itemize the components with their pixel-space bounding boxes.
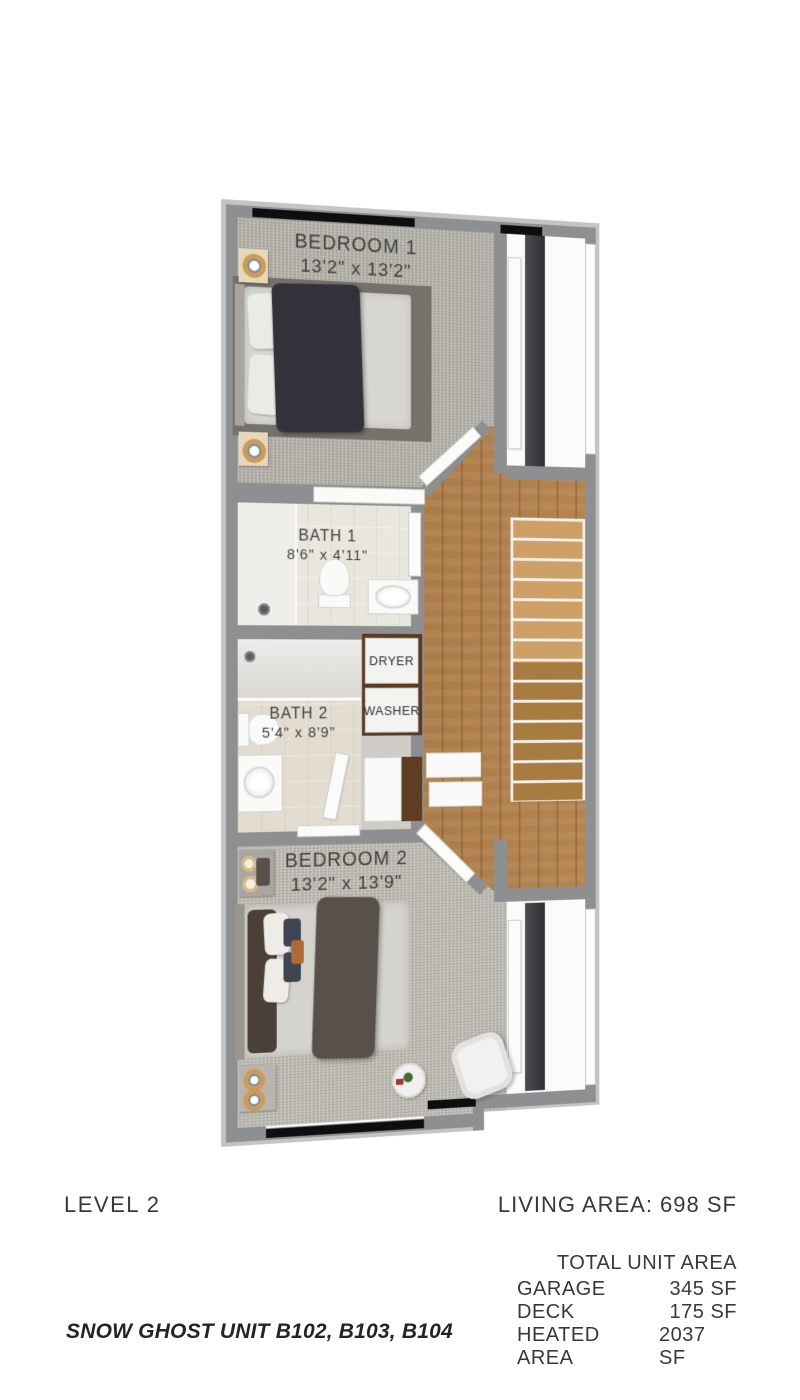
area-row-garage: GARAGE 345 SF xyxy=(517,1278,737,1301)
level-label: LEVEL 2 xyxy=(64,1192,161,1218)
area-row-deck-label: DECK xyxy=(517,1301,575,1324)
stair-treads-upper xyxy=(513,520,582,662)
bath1-wall-cabinet xyxy=(313,486,425,504)
washer-label: WASHER xyxy=(364,703,420,718)
bedroom1-closet-door xyxy=(509,258,521,449)
wall-closet-bottom xyxy=(507,886,585,902)
dryer: DRYER xyxy=(365,638,419,684)
bath1-sink xyxy=(375,585,411,609)
wall-closet-top xyxy=(507,465,585,481)
bedroom1-bed-headboard xyxy=(235,284,245,426)
bedroom2-closet-wardrobe xyxy=(525,902,545,1091)
hall-closet-door-2 xyxy=(429,781,483,807)
laundry-lower-shelf xyxy=(402,757,423,822)
area-table: TOTAL UNIT AREA GARAGE 345 SF DECK 175 S… xyxy=(517,1252,737,1370)
bedroom1-blanket xyxy=(271,283,364,432)
bath2-label: BATH 2 5'4" x 8'9" xyxy=(231,704,366,743)
bedroom2-blanket xyxy=(312,897,380,1059)
bath2-shower-glass xyxy=(238,698,361,701)
living-area-label: LIVING AREA: 698 SF xyxy=(498,1192,737,1218)
wall-bedroom1-closet xyxy=(494,233,507,474)
area-row-garage-value: 345 SF xyxy=(670,1278,737,1301)
stair-treads-lower xyxy=(513,662,582,801)
bath1-label: BATH 1 8'6" x 4'11" xyxy=(260,526,394,567)
bedroom2-accent-pillow xyxy=(291,940,304,964)
bath1-shower-glass xyxy=(295,501,297,630)
window-right-bottom xyxy=(585,908,596,1085)
dryer-label: DRYER xyxy=(369,653,414,668)
bath1-name: BATH 1 xyxy=(260,526,394,548)
bath1-shower-head xyxy=(258,603,270,615)
bath1-door xyxy=(409,513,420,576)
area-table-title: TOTAL UNIT AREA xyxy=(517,1252,737,1275)
area-row-heated-value: 2037 SF xyxy=(659,1324,737,1370)
staircase xyxy=(511,517,586,801)
area-row-deck: DECK 175 SF xyxy=(517,1301,737,1324)
area-row-deck-value: 175 SF xyxy=(670,1301,737,1324)
washer: WASHER xyxy=(365,688,419,733)
bedroom1-lamp-bottom xyxy=(243,439,266,464)
area-row-garage-label: GARAGE xyxy=(517,1278,606,1301)
hall-closet-door-1 xyxy=(426,752,481,778)
window-right-top xyxy=(585,243,596,454)
area-row-heated-label: HEATED AREA xyxy=(517,1324,659,1370)
bath2-dims: 5'4" x 8'9" xyxy=(231,724,366,744)
bath1-dims: 8'6" x 4'11" xyxy=(260,546,394,567)
bedroom1-closet-wardrobe xyxy=(525,234,545,467)
bedroom1-label: BEDROOM 1 13'2" x 13'2" xyxy=(260,227,450,286)
bedroom2-label: BEDROOM 2 13'2" x 13'9" xyxy=(250,846,440,899)
bath2-threshold xyxy=(297,824,360,837)
laundry-lower-cabinet xyxy=(364,757,402,822)
bedroom2-table-item xyxy=(396,1079,404,1085)
wall-bedroom2-closet xyxy=(494,840,507,902)
bedroom2-closet-door xyxy=(509,921,521,1073)
bedroom2-bed-headboard xyxy=(235,904,245,1060)
unit-title: SNOW GHOST UNIT B102, B103, B104 xyxy=(66,1320,453,1344)
area-row-heated: HEATED AREA 2037 SF xyxy=(517,1324,737,1370)
floor-plan: DRYER WASHER BEDROOM 1 13'2" x 13'2" BAT… xyxy=(221,199,599,1147)
bath2-shower xyxy=(238,639,361,699)
bath2-shower-head xyxy=(245,651,256,662)
bath2-name: BATH 2 xyxy=(231,704,366,725)
